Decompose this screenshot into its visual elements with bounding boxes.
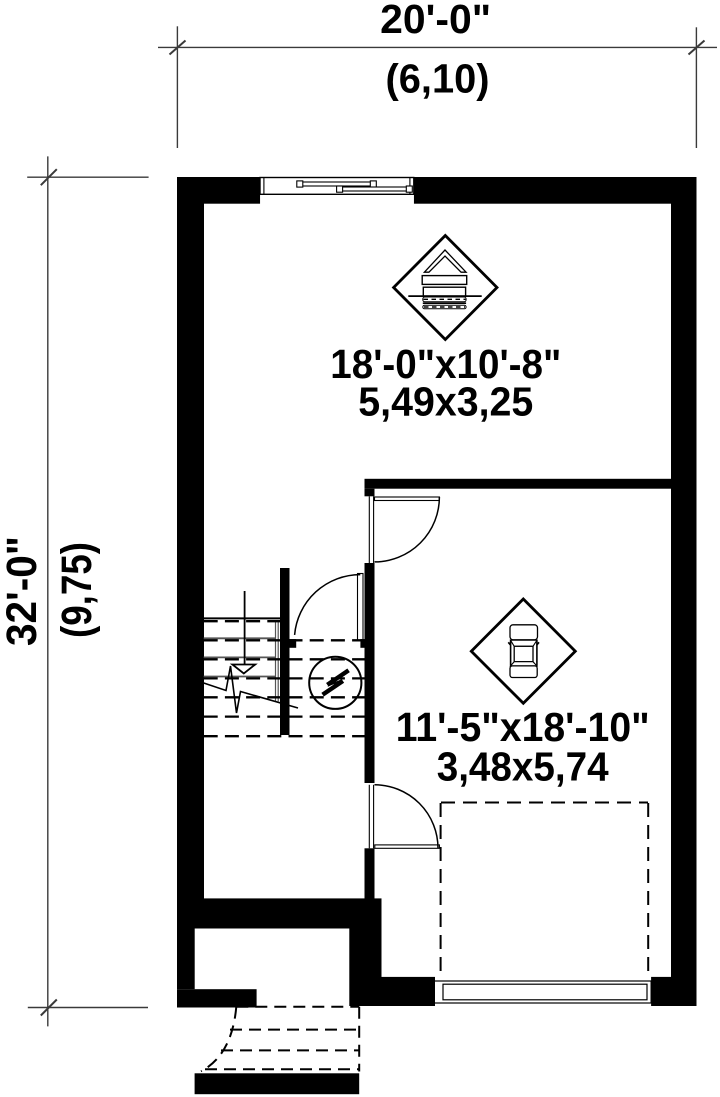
svg-text:3,48x5,74: 3,48x5,74 [437, 743, 609, 789]
svg-text:5,49x3,25: 5,49x3,25 [358, 378, 533, 424]
svg-text:32'-0": 32'-0" [0, 536, 46, 646]
svg-text:(6,10): (6,10) [386, 55, 490, 101]
svg-text:20'-0": 20'-0" [380, 0, 491, 42]
svg-text:(9,75): (9,75) [53, 542, 101, 638]
